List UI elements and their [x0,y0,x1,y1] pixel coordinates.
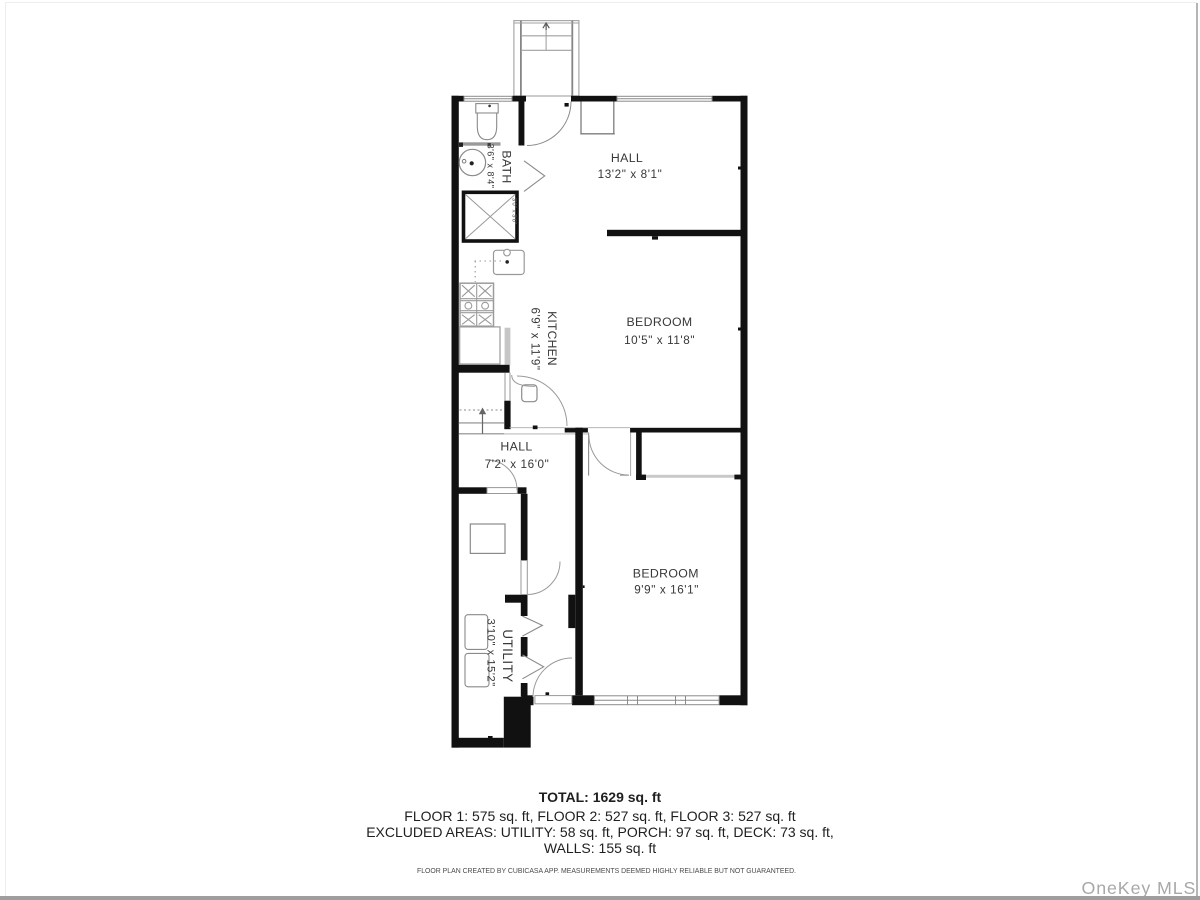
svg-text:13'2" x 8'1": 13'2" x 8'1" [598,168,663,181]
svg-text:3'0" x 3'6": 3'0" x 3'6" [511,198,517,224]
svg-text:3'10" x 15'2": 3'10" x 15'2" [484,619,496,687]
svg-text:6'9" x 11'9": 6'9" x 11'9" [529,307,541,370]
svg-text:9'9" x 16'1": 9'9" x 16'1" [634,584,699,597]
svg-text:UTILITY: UTILITY [500,629,515,682]
svg-text:3'6" x 8'4": 3'6" x 8'4" [486,144,496,189]
svg-text:7'2" x 16'0": 7'2" x 16'0" [485,458,550,471]
svg-text:KITCHEN: KITCHEN [545,311,559,366]
svg-text:HALL: HALL [611,151,643,165]
svg-text:10'5" x 11'8": 10'5" x 11'8" [624,334,695,347]
svg-text:BEDROOM: BEDROOM [633,566,699,580]
svg-text:BEDROOM: BEDROOM [627,315,693,329]
svg-text:BATH: BATH [499,150,513,183]
svg-text:HALL: HALL [500,440,532,454]
